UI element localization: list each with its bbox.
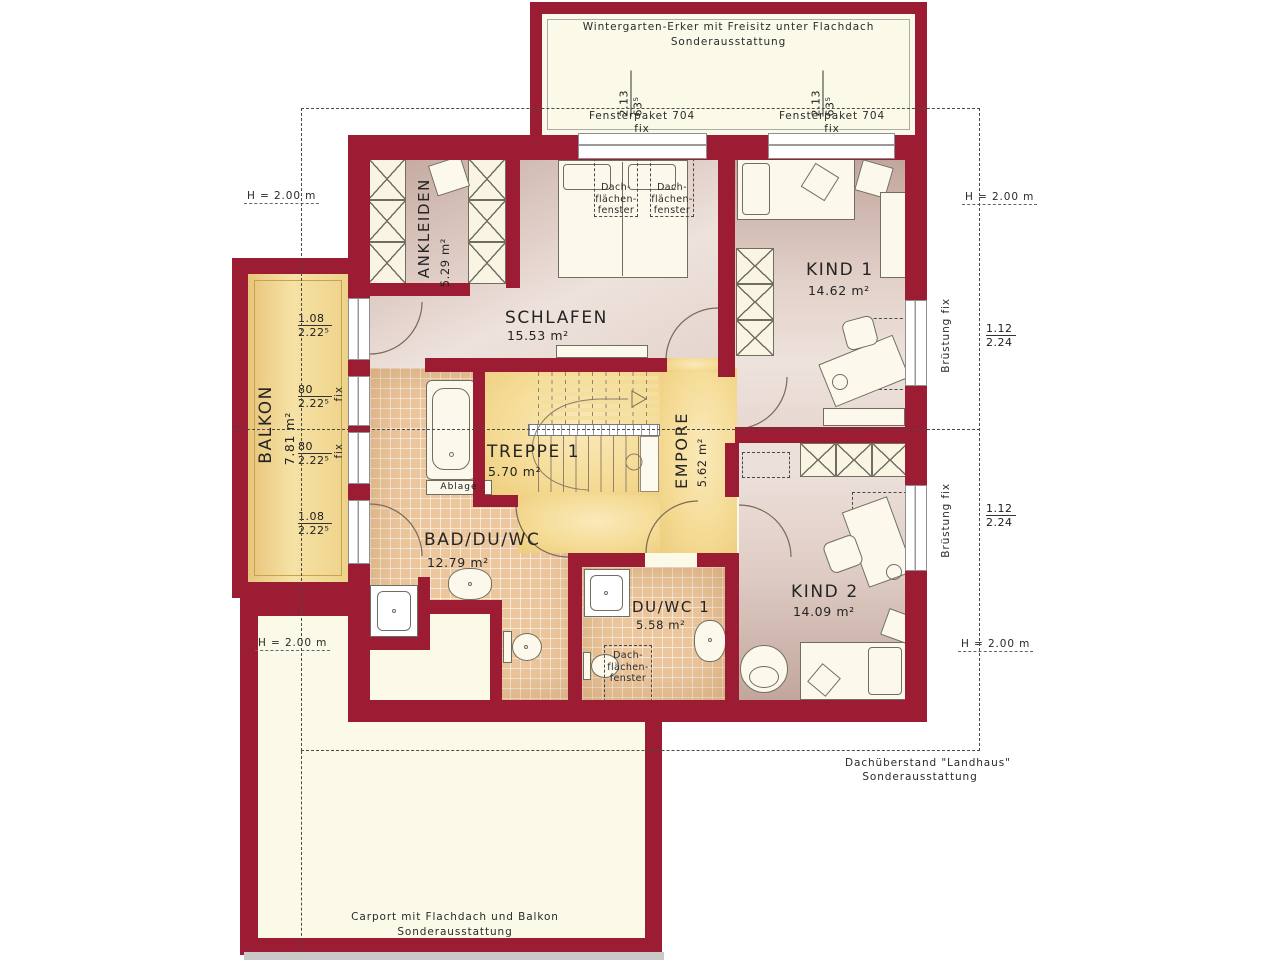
carport-note-line1: Carport mit Flachdach und Balkon: [300, 911, 610, 923]
wintergarten-note-line1: Wintergarten-Erker mit Freisitz unter Fl…: [542, 21, 915, 33]
section-line: [232, 429, 980, 430]
roof-overhang-extension: [301, 751, 302, 951]
dachueberstand-note-line2: Sonderausstattung: [845, 771, 995, 783]
floor-plan: Wintergarten-Erker mit Freisitz unter Fl…: [0, 0, 1280, 960]
dachueberstand-note-line1: Dachüberstand "Landhaus": [845, 757, 995, 769]
wintergarten-note-line2: Sonderausstattung: [542, 36, 915, 48]
right-window-dim-2: 1.12 2.24: [986, 502, 1016, 529]
right-window-dim-1: 1.12 2.24: [986, 322, 1016, 349]
room-balkon-area: 7.81 m²: [282, 412, 297, 465]
room-balkon-name: BALKON: [256, 385, 276, 464]
carport-note-line2: Sonderausstattung: [300, 926, 610, 938]
